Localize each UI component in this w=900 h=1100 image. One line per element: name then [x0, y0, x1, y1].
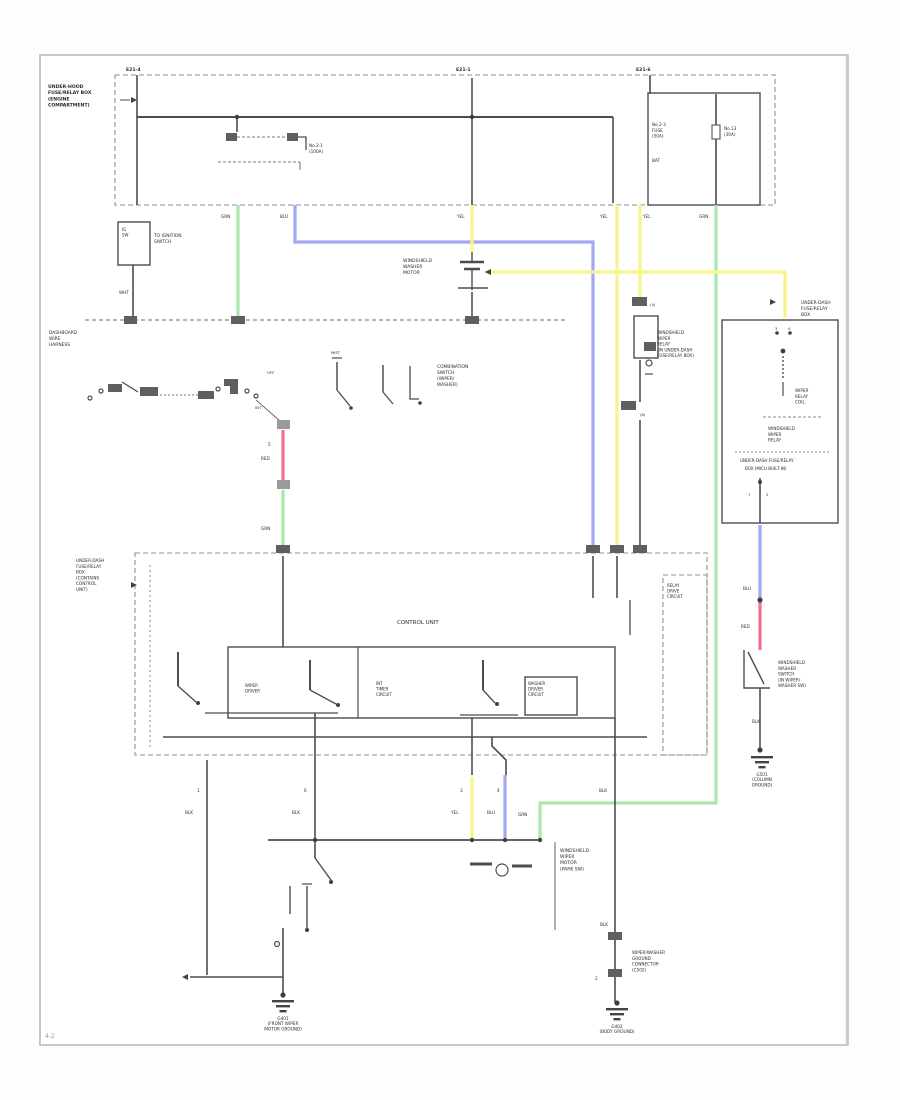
diagram-frame [40, 55, 848, 1045]
ground-body-bar2 [614, 1018, 621, 1020]
wire-tag-yel2: YEL [599, 214, 608, 219]
wire-tag-yel4: YEL [450, 810, 459, 815]
wire-tag-t6: 6 [304, 788, 307, 793]
wire-tag-grn1: GRN [221, 214, 230, 219]
wire-tag-blu1: BLU [280, 214, 288, 219]
ground-wiper-motor-bar1 [276, 1005, 290, 1007]
wire-tag-blk4: BLK [292, 810, 300, 815]
fuse-cap-left [226, 133, 237, 141]
cell-washer-driver: WASHERDRIVERCIRCUIT [528, 681, 546, 697]
chain-blob4b [230, 386, 238, 394]
switch-tag-off: OFF [267, 370, 274, 375]
washer-switch-gnd-dot [757, 747, 762, 752]
ground-body-bar0 [606, 1008, 628, 1010]
cu-entry-blob-black [633, 545, 647, 553]
wire-tag-blk2: BLK [185, 810, 193, 815]
wire-tag-t1: 1 [197, 788, 200, 793]
junction-green-end [231, 316, 245, 324]
connector-tag-b: E21-1 [456, 67, 471, 73]
wire-tag-grn3: GRN [261, 526, 270, 531]
wire-tag-blu4: BLU [487, 810, 495, 815]
sw3-contact-dot [418, 401, 422, 405]
connector-red-green [277, 480, 290, 489]
micu-line2: BOX (MICU BUILT-IN) [745, 466, 787, 471]
wire-tag-red: RED [261, 456, 270, 461]
wire-tag-grn4: GRN [518, 812, 527, 817]
connector-tag-a: E21-4 [126, 67, 141, 73]
fuse-cap-right [287, 133, 298, 141]
wiring-diagram-page: G401(FRONT WIPERMOTOR GROUND)G402(BODY G… [0, 0, 900, 1100]
subbox-bat-tag: BAT [652, 158, 660, 163]
switch-tag-mist: MIST [331, 350, 341, 355]
chain-blob1 [108, 384, 122, 392]
ground-wire-tag-blk: BLK [600, 922, 608, 927]
subbox-fuse-right-label: No.13(30A) [724, 126, 737, 137]
cu-entry-blob-blue [586, 545, 600, 553]
switch-tag-int: INT [255, 405, 262, 410]
chain-blob4a [224, 379, 238, 386]
junction-ignition [124, 316, 137, 324]
wire-tag-yel3: YEL [642, 214, 651, 219]
ground-run-connector1 [608, 932, 622, 940]
relay-coil-top-dot [781, 349, 786, 354]
junction-washer-gnd [465, 316, 479, 324]
wire-tag-blk3: BLK [599, 788, 607, 793]
junction-park [313, 838, 317, 842]
connector-int-relay-top [632, 297, 647, 306]
connector-int-relay-bot [621, 401, 636, 410]
blue-red-junction [757, 597, 762, 602]
sw2-contact-dot [349, 406, 353, 410]
int-relay-bot-tag: (8) [640, 412, 646, 417]
ground-column-bar0 [751, 756, 773, 758]
chain-blob2 [140, 387, 158, 396]
ground-body-bar1 [610, 1013, 624, 1015]
relay-terminal-3 [775, 331, 779, 335]
cu-entry-blob-yellow [610, 545, 624, 553]
relay-terminal-4 [788, 331, 792, 335]
cu-entry-blob-green [276, 545, 290, 553]
wire-tag-t4: 4 [497, 788, 500, 793]
relaybox-bottom-terminal [758, 480, 762, 484]
int-relay-top-tag: (4) [650, 302, 656, 307]
connector-tag-c: E21-6 [636, 67, 651, 73]
transistor3-dot [495, 702, 499, 706]
subbox-fuse-body [712, 125, 720, 139]
transistor2-dot [336, 703, 340, 707]
wiring-diagram-canvas: G401(FRONT WIPERMOTOR GROUND)G402(BODY G… [0, 0, 900, 1100]
junction-motor-blue [503, 838, 507, 842]
page-corner-label: 4-2 [45, 1033, 55, 1040]
micu-line1: UNDER-DASH FUSE/RELAY [740, 458, 794, 463]
control-unit-title: CONTROL UNIT [397, 620, 439, 626]
ground-run-connector2 [608, 969, 622, 977]
connector-red-top [277, 420, 290, 429]
junction-motor-green [538, 838, 542, 842]
wire-tag-grn2: GRN [699, 214, 708, 219]
wire-tag-red2: RED [741, 624, 750, 629]
park-blade-contact [329, 880, 333, 884]
int-relay-element [644, 342, 656, 351]
ground-column-bar2 [759, 766, 766, 768]
junction-bus-fuse [235, 115, 239, 119]
wire-tag-yel1: YEL [456, 214, 465, 219]
ground-column-bar1 [755, 761, 769, 763]
ground-wire-tag-c: 2 [595, 976, 598, 981]
right-ground-dot [614, 1000, 619, 1005]
wire-tag-blk1: BLK [752, 719, 760, 724]
wire-tag-red-term: 5 [268, 442, 271, 447]
wire-tag-t3: 3 [460, 788, 463, 793]
junction-motor-yellow [470, 838, 474, 842]
chain-blob3 [198, 391, 214, 399]
wire-tag-blu2: BLU [743, 586, 751, 591]
ground-wiper-motor-bar0 [272, 1000, 294, 1002]
transistor1-dot [196, 701, 200, 705]
main-fuse-label: No.2-1(100A) [309, 143, 323, 154]
park-contact-dot [305, 928, 309, 932]
ground-wiper-motor-bar2 [280, 1010, 287, 1012]
wire-tag-wht: WHT [119, 290, 129, 295]
junction-bus-washer [470, 115, 474, 119]
left-ground-dot [280, 992, 285, 997]
